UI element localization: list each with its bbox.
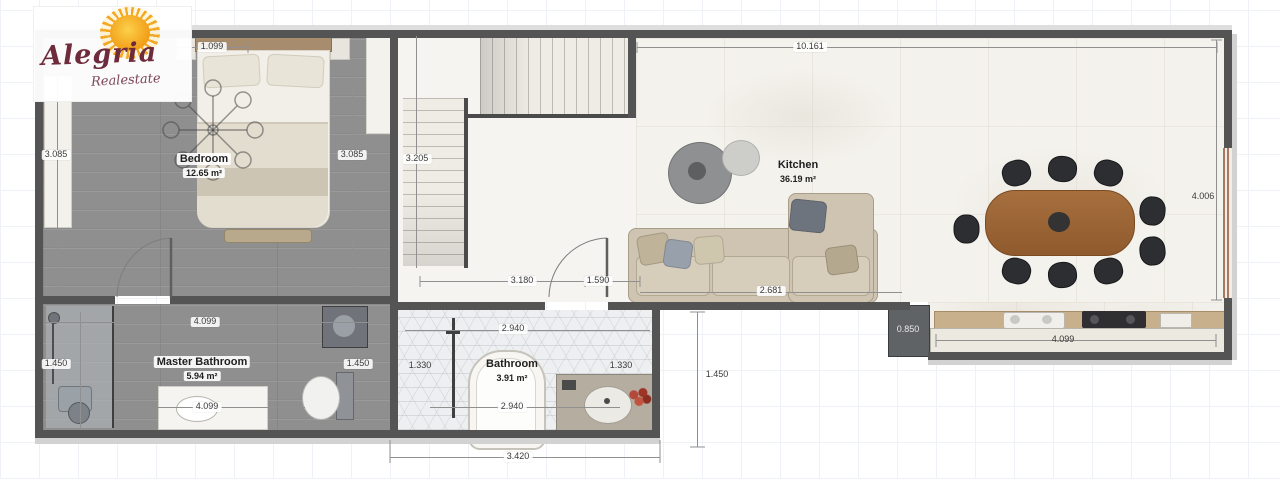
nightstand-right xyxy=(330,38,350,60)
rolling-chair xyxy=(68,402,90,424)
sofa-pillow xyxy=(693,235,725,266)
dimension-label: 1.450 xyxy=(706,370,729,380)
bathroom-label: Bathroom 3.91 m² xyxy=(486,354,538,383)
dimension-label: 2.940 xyxy=(499,324,528,334)
flower-bouquet xyxy=(626,386,652,408)
dimension-label: 4.099 xyxy=(1052,335,1075,345)
window-right-mullion xyxy=(1227,148,1229,298)
toilet-bowl xyxy=(302,376,340,420)
staircase-lower-flight xyxy=(403,98,464,266)
dimension-label: 1.450 xyxy=(42,359,71,369)
dimension-label: 1.590 xyxy=(584,276,613,286)
dimension-label: 4.099 xyxy=(193,402,222,412)
kitchen-sink-basin xyxy=(1010,315,1020,324)
wall-stairs-divider xyxy=(390,30,398,430)
dimension-label: 1.330 xyxy=(409,361,432,371)
master-bathroom-label: Master Bathroom 5.94 m² xyxy=(154,352,250,381)
dimension-label: 10.161 xyxy=(793,42,827,52)
stair-railing-horizontal xyxy=(464,114,628,118)
sofa-pillow xyxy=(824,244,860,276)
kitchen-area: 36.19 m² xyxy=(780,174,816,184)
dimension-label: 2.681 xyxy=(757,286,786,296)
counter-small-appliance xyxy=(1160,313,1192,328)
wall-stairs-kitchen xyxy=(628,30,636,118)
dimension-label: 3.180 xyxy=(508,276,537,286)
dimension-label: 4.006 xyxy=(1192,192,1215,202)
bedroom-area: 12.65 m² xyxy=(183,168,225,178)
shower-rail xyxy=(52,314,54,384)
bed-pillow-left xyxy=(202,54,261,89)
logo: Alegria Realestate xyxy=(33,6,192,102)
sofa-pillow xyxy=(662,238,694,270)
kitchen-label: Kitchen 36.19 m² xyxy=(778,155,818,184)
kitchen-name: Kitchen xyxy=(778,159,818,171)
cooktop-burner xyxy=(1090,315,1099,324)
dimension-label: 3.085 xyxy=(42,150,71,160)
bed-bench xyxy=(224,229,312,243)
closet-right xyxy=(366,36,392,134)
wall-counter-bottom xyxy=(928,352,1232,360)
washer-drum xyxy=(333,315,355,337)
vanity-bathroom-sink xyxy=(584,386,632,424)
bedroom-label: Bedroom 12.65 m² xyxy=(177,149,231,178)
wall-hall-bottom-b xyxy=(608,302,910,310)
wall-bedroom-bottom-a xyxy=(35,296,115,304)
staircase-upper-flight xyxy=(480,36,628,114)
dimension-label: 2.940 xyxy=(498,402,527,412)
floor-plan: Bedroom 12.65 m² Kitchen 36.19 m² Master… xyxy=(0,0,1280,479)
dimension-label: 0.850 xyxy=(897,325,920,335)
shadow-bottom xyxy=(35,438,660,444)
vanity-accessory xyxy=(562,380,576,390)
bathroom-area: 3.91 m² xyxy=(496,373,527,383)
sofa-pillow xyxy=(788,198,827,234)
wall-bedroom-bottom-b xyxy=(170,296,398,304)
coffee-table-bowl xyxy=(688,162,706,180)
bathroom-name: Bathroom xyxy=(486,358,538,370)
dimension-label: 3.205 xyxy=(403,154,432,164)
dimension-label: 1.450 xyxy=(344,359,373,369)
kitchen-sink-basin xyxy=(1042,315,1052,324)
cooktop-burner xyxy=(1126,315,1135,324)
master-bathroom-area: 5.94 m² xyxy=(183,371,220,381)
wall-bathroom-right xyxy=(652,310,660,438)
coffee-table-small xyxy=(722,140,760,176)
wall-bottom-left xyxy=(35,430,660,438)
vanity-faucet xyxy=(604,398,610,404)
dimension-label: 3.420 xyxy=(504,452,533,462)
logo-name: Alegria xyxy=(40,37,157,72)
shower-head-bathroom-icon xyxy=(446,330,460,334)
bed-pillow-right xyxy=(266,54,325,89)
dimension-label: 4.099 xyxy=(191,317,220,327)
master-bathroom-name: Master Bathroom xyxy=(154,356,250,368)
dimension-label: 3.085 xyxy=(338,150,367,160)
wall-hall-bottom-a xyxy=(398,302,545,310)
shower-head-icon xyxy=(48,312,60,324)
dimension-label: 1.099 xyxy=(198,42,227,52)
logo-subtitle: Realestate xyxy=(91,71,161,90)
shadow-right xyxy=(1232,34,1237,360)
dimension-label: 1.330 xyxy=(610,361,633,371)
stair-railing-vertical xyxy=(464,98,468,268)
dining-centerpiece xyxy=(1048,212,1070,232)
bedroom-name: Bedroom xyxy=(177,153,231,165)
shadow-counter xyxy=(928,360,1232,365)
dining-chair xyxy=(954,215,980,244)
